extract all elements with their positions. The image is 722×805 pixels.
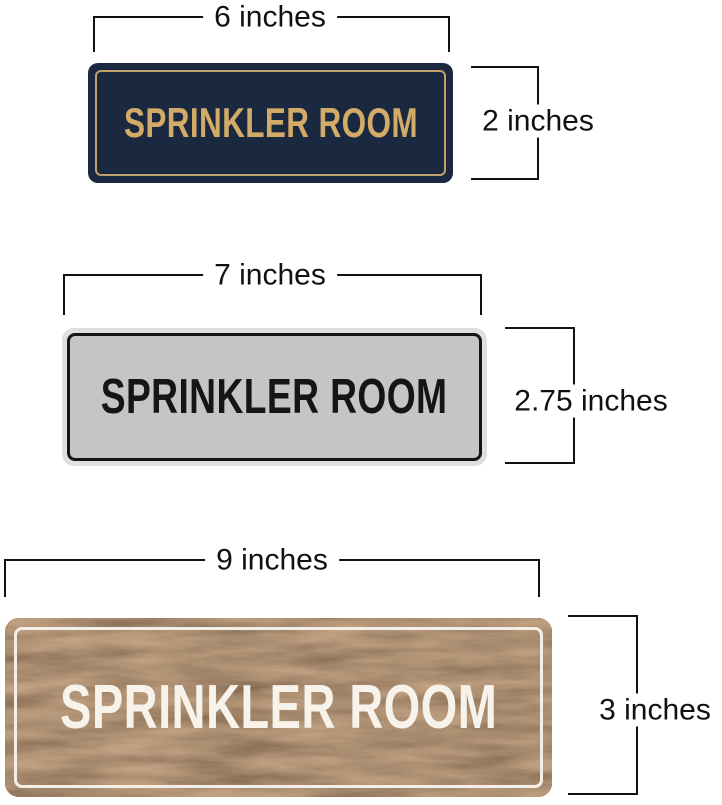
sign-navy-gold: SPRINKLER ROOM [88,63,453,183]
sign-text: SPRINKLER ROOM [101,369,448,425]
height-dimension-tick-top [471,66,539,68]
width-dimension-tick-right [448,16,450,52]
width-dimension-tick-left [4,559,6,597]
height-dimension-tick-bottom [471,178,539,180]
height-dimension-label: 2 inches [471,105,605,138]
sign-text: SPRINKLER ROOM [124,99,418,147]
height-dimension-label: 3 inches [588,694,722,727]
height-dimension-label: 2.75 inches [503,385,678,418]
width-dimension-label: 7 inches [203,259,337,292]
height-dimension-tick-top [568,615,638,617]
sign-silver-black: SPRINKLER ROOM [62,328,487,466]
width-dimension-tick-left [93,16,95,52]
height-dimension-tick-bottom [568,793,638,795]
width-dimension-label: 6 inches [203,1,337,34]
width-dimension-label: 9 inches [205,544,339,577]
width-dimension-tick-right [480,274,482,315]
sign-walnut-white: SPRINKLER ROOM [5,618,552,797]
sign-plate: SPRINKLER ROOM [67,333,482,461]
height-dimension-tick-bottom [505,462,575,464]
width-dimension-tick-right [538,559,540,597]
width-dimension-tick-left [63,274,65,315]
sign-text: SPRINKLER ROOM [60,672,497,743]
sign-size-comparison-image: 6 inches SPRINKLER ROOM 2 inches 7 inche… [0,0,722,805]
height-dimension-tick-top [505,327,575,329]
